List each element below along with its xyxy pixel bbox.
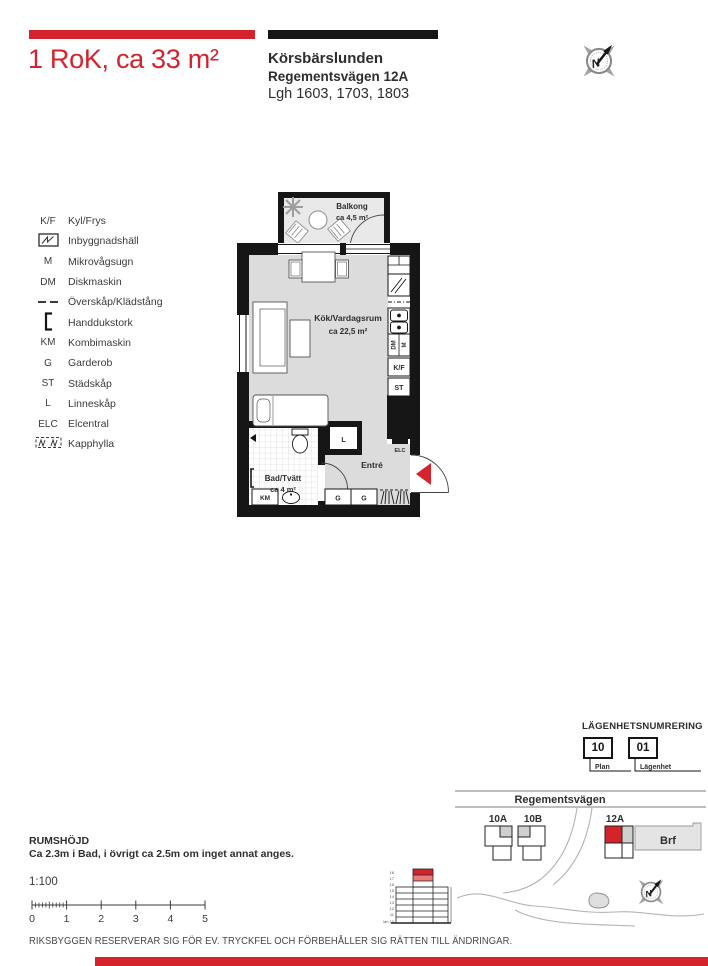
dm-label: DM (392, 340, 398, 349)
l-label: L (341, 437, 346, 444)
scale-tick: 4 (167, 913, 173, 925)
numbering-callouts: Plan Lägenhet (583, 759, 708, 775)
towel-rail-icon (28, 312, 68, 334)
legend-label: Mikrovågsugn (68, 256, 218, 268)
header-black-rule (268, 30, 438, 39)
disclaimer-text: RIKSBYGGEN RESERVERAR SIG FÖR EV. TRYCKF… (29, 936, 512, 947)
elc-unit (392, 439, 408, 444)
building-elevation: 18 17 16 15 14 13 12 11 Plan 10 (383, 861, 459, 935)
page-title: 1 RoK, ca 33 m² (28, 44, 219, 75)
balcony-table (309, 211, 327, 229)
plan-number-box: 10 (583, 737, 613, 759)
floor-label: 18 (390, 870, 395, 875)
room-height-title: RUMSHÖJD (29, 835, 89, 847)
floor-label: 17 (390, 876, 395, 881)
legend-label: Handdukstork (68, 317, 218, 329)
floor-label: 13 (390, 900, 395, 905)
apartment-numbers: Lgh 1603, 1703, 1803 (268, 86, 409, 102)
living-window (237, 315, 249, 372)
site-map: Regementsvägen 10A 10B 12A B (455, 786, 706, 929)
footer-red-rule (95, 957, 708, 966)
scale-tick: 5 (202, 913, 208, 925)
map-feature (589, 893, 609, 908)
building-10a-label: 10A (489, 814, 507, 825)
apartment-callout-label: Lägenhet (640, 764, 672, 771)
scale-bar: 0 1 2 3 4 5 (29, 898, 211, 926)
legend-symbol: DM (28, 277, 68, 288)
legend-label: Överskåp/Klädstång (68, 296, 218, 308)
dining-table (302, 252, 335, 282)
compass-icon: N (576, 38, 622, 84)
symbol-legend: K/F Kyl/Frys Inbyggnadshäll M Mikrovågsu… (28, 211, 218, 455)
kitchen-strip (388, 256, 410, 396)
legend-symbol: ST (28, 378, 68, 389)
legend-label: Elcentral (68, 418, 218, 430)
hob-icon (28, 233, 68, 250)
hob (388, 274, 410, 296)
scale-tick: 1 (64, 913, 70, 925)
legend-symbol: KM (28, 337, 68, 348)
header-red-rule (29, 30, 255, 39)
building-12a-label: 12A (606, 814, 624, 825)
legend-symbol: G (28, 358, 68, 369)
legend-label: Kombimaskin (68, 337, 218, 349)
brf-label: Brf (660, 835, 676, 847)
balcony: Balkong ca 4,5 m² (278, 192, 390, 249)
legend-label: Diskmaskin (68, 276, 218, 288)
floor-label: 15 (390, 888, 395, 893)
project-name: Körsbärslunden (268, 50, 383, 67)
floor-label: 12 (390, 906, 395, 911)
living-label: Kök/Vardagsrum (314, 313, 382, 323)
entry-door (410, 455, 449, 493)
legend-label: Linneskåp (68, 398, 218, 410)
building-10b-label: 10B (524, 814, 542, 825)
bath-label: Bad/Tvätt (265, 474, 302, 483)
rail-icon (28, 297, 68, 308)
g-label: G (361, 496, 367, 503)
legend-symbol: K/F (28, 216, 68, 227)
bath-area: ca 4 m² (270, 485, 296, 494)
entry-label: Entré (361, 460, 383, 470)
scale-tick: 3 (133, 913, 139, 925)
street-name: Regementsvägen (514, 794, 605, 806)
living-area: ca 22,5 m² (329, 327, 368, 336)
km-label: KM (260, 495, 270, 502)
floor-plan: Balkong ca 4,5 m² (230, 186, 460, 531)
legend-symbol: L (28, 398, 68, 409)
scale-tick: 2 (98, 913, 104, 925)
legend-label: Kapphylla (68, 438, 218, 450)
plant-icon (283, 197, 303, 217)
legend-symbol: ELC (28, 419, 68, 430)
street-address: Regementsvägen 12A (268, 69, 408, 84)
plan-callout-label: Plan (595, 764, 610, 771)
scale-tick: 0 (29, 913, 35, 925)
coffee-table (290, 320, 310, 357)
legend-label: Inbyggnadshäll (68, 235, 218, 247)
floor-label: 14 (390, 894, 395, 899)
coat-rack-icon (28, 436, 68, 452)
balcony-label: Balkong (336, 202, 368, 211)
floor-label: 16 (390, 882, 395, 887)
numbering-title: LÄGENHETSNUMRERING (582, 721, 703, 732)
pillow (257, 399, 270, 422)
floor-label: 11 (390, 912, 395, 917)
scale-label: 1:100 (29, 876, 58, 888)
g-label: G (335, 496, 341, 503)
legend-label: Garderob (68, 357, 218, 369)
elc-label: ELC (395, 448, 406, 454)
building-12a (605, 826, 633, 858)
st-label: ST (395, 385, 405, 392)
toilet (292, 429, 308, 435)
legend-symbol: M (28, 256, 68, 267)
kf-label: K/F (393, 365, 405, 372)
m-label: M (402, 343, 408, 348)
apartment-number-box: 01 (628, 737, 658, 759)
legend-label: Kyl/Frys (68, 215, 218, 227)
legend-label: Städskåp (68, 378, 218, 390)
floorplan-sheet: 1 RoK, ca 33 m² Körsbärslunden Regements… (0, 0, 708, 966)
room-height-text: Ca 2.3m i Bad, i övrigt ca 2.5m om inget… (29, 848, 309, 860)
balcony-area: ca 4,5 m² (336, 213, 369, 222)
